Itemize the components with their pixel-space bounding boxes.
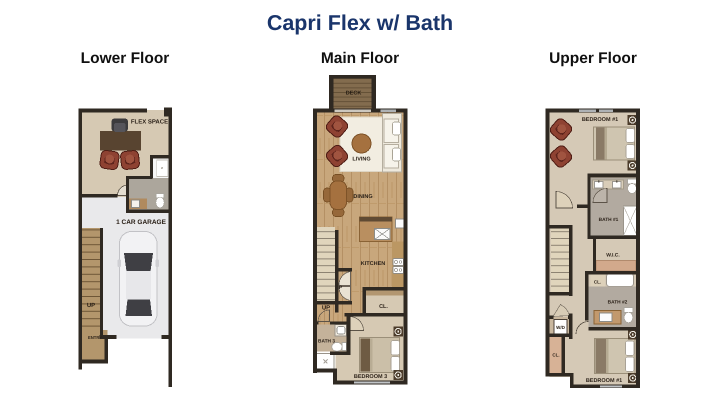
svg-text:Main Floor: Main Floor: [321, 50, 399, 67]
svg-text:Upper Floor: Upper Floor: [549, 50, 637, 67]
svg-text:BATH 3: BATH 3: [318, 339, 335, 345]
svg-text:BATH #1: BATH #1: [599, 217, 619, 223]
svg-text:LIVING: LIVING: [352, 157, 370, 163]
svg-text:W/D: W/D: [556, 325, 565, 330]
svg-text:Lower Floor: Lower Floor: [81, 50, 170, 67]
svg-text:KITCHEN: KITCHEN: [361, 261, 385, 267]
svg-text:BEDROOM 3: BEDROOM 3: [354, 374, 387, 380]
svg-text:DINING: DINING: [353, 194, 372, 200]
svg-text:BEDROOM #1: BEDROOM #1: [586, 378, 622, 384]
svg-text:1 CAR GARAGE: 1 CAR GARAGE: [116, 219, 167, 226]
svg-text:FLEX SPACE: FLEX SPACE: [131, 119, 168, 126]
svg-text:BATH #2: BATH #2: [608, 300, 628, 306]
svg-text:CL.: CL.: [379, 304, 388, 310]
svg-text:BEDROOM #1: BEDROOM #1: [582, 117, 618, 123]
svg-text:CL.: CL.: [594, 280, 601, 285]
svg-text:UP: UP: [87, 302, 95, 309]
svg-text:DECK: DECK: [346, 91, 362, 97]
svg-text:CL.: CL.: [552, 353, 559, 358]
svg-text:Capri Flex w/ Bath: Capri Flex w/ Bath: [267, 11, 453, 35]
svg-text:ENTRY: ENTRY: [88, 335, 102, 340]
svg-text:W.I.C.: W.I.C.: [606, 253, 620, 259]
